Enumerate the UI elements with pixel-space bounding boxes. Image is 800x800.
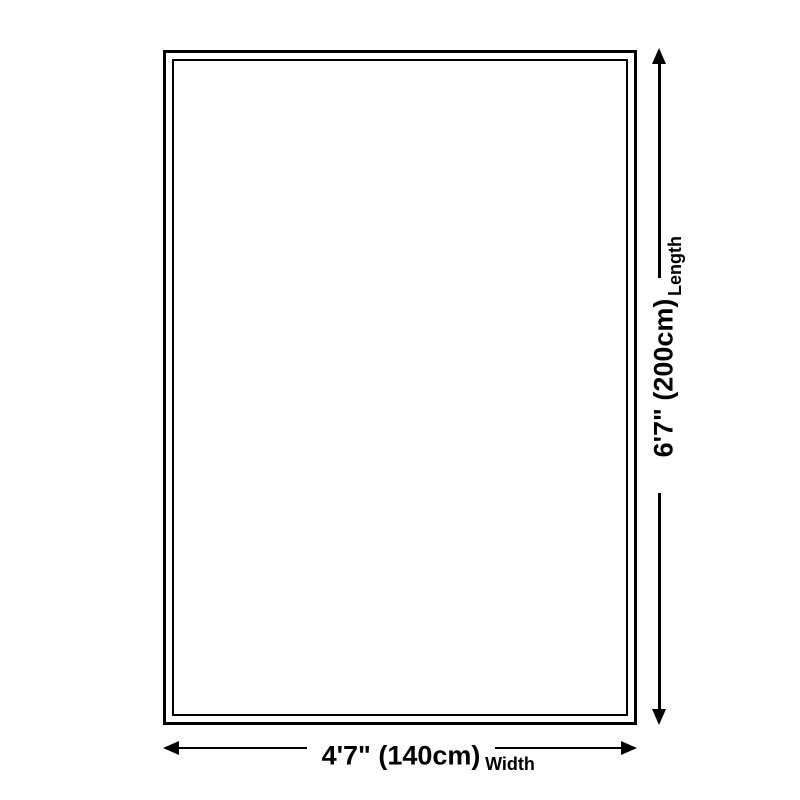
width-dimension-line-right — [495, 747, 623, 750]
product-outline-inner-border — [172, 59, 628, 716]
product-outline — [163, 50, 637, 725]
length-dimension-line-top — [658, 60, 661, 278]
size-diagram: 6'7" (200cm) Length 4'7" (140cm) Width — [0, 0, 800, 800]
arrow-right-icon — [621, 741, 637, 755]
width-value: 4'7" (140cm) — [322, 743, 481, 770]
width-label: Width — [485, 755, 535, 773]
width-dimension-line-left — [176, 747, 307, 750]
length-label: Length — [666, 236, 684, 296]
length-dimension-line-bottom — [658, 493, 661, 713]
length-value: 6'7" (200cm) — [651, 299, 678, 458]
arrow-down-icon — [652, 709, 666, 725]
